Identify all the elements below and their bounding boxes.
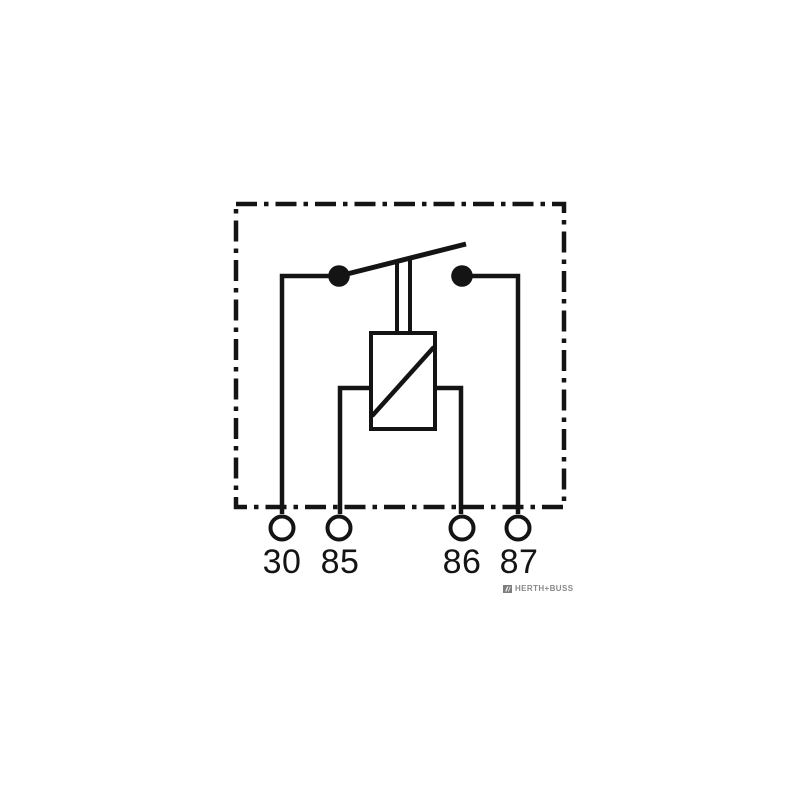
terminal-pin-85	[328, 517, 351, 540]
switch-arm	[339, 244, 466, 276]
brand-watermark-text: HERTH+BUSS	[515, 584, 573, 593]
wire-terminal-30	[282, 276, 339, 514]
terminal-label-87: 87	[481, 547, 557, 577]
terminal-pin-86	[451, 517, 474, 540]
wire-terminal-87	[462, 276, 518, 514]
wire-terminal-86	[434, 388, 461, 514]
herth-buss-logo-icon	[503, 585, 512, 593]
contact-dot-left	[328, 265, 350, 287]
contact-dot-right	[451, 265, 473, 287]
relay-schematic-page: 30 85 86 87 HERTH+BUSS	[0, 0, 800, 800]
terminal-pin-30	[271, 517, 294, 540]
wire-terminal-85	[340, 388, 372, 514]
terminal-label-85: 85	[302, 547, 378, 577]
brand-watermark: HERTH+BUSS	[503, 584, 573, 593]
terminal-pin-87	[507, 517, 530, 540]
schematic-drawing	[0, 0, 800, 800]
